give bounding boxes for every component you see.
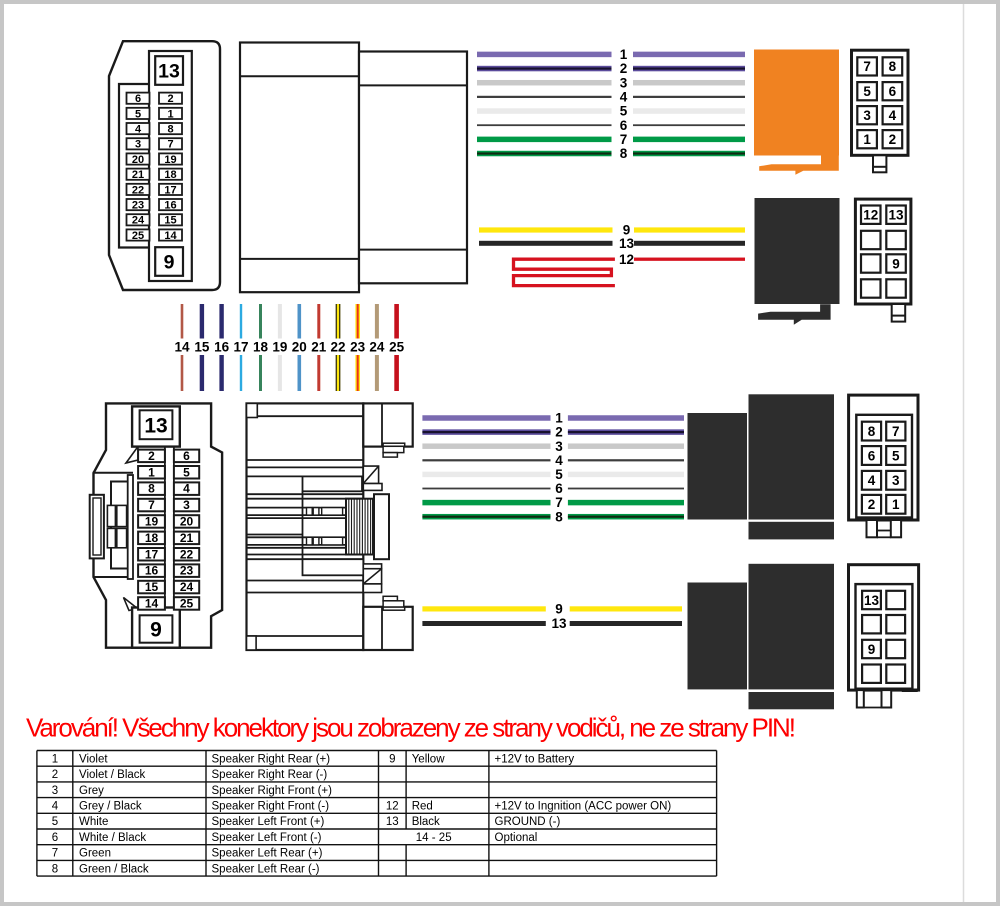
svg-text:1: 1 bbox=[167, 108, 173, 120]
svg-text:9: 9 bbox=[868, 642, 876, 657]
svg-text:12: 12 bbox=[863, 208, 878, 223]
svg-text:22: 22 bbox=[132, 184, 144, 196]
svg-text:2: 2 bbox=[148, 449, 155, 463]
svg-text:14: 14 bbox=[145, 597, 159, 611]
svg-text:9: 9 bbox=[892, 256, 900, 271]
svg-text:8: 8 bbox=[868, 424, 876, 439]
svg-text:9: 9 bbox=[555, 602, 563, 617]
svg-text:16: 16 bbox=[145, 564, 159, 578]
svg-text:12: 12 bbox=[619, 252, 634, 267]
svg-text:4: 4 bbox=[135, 124, 142, 136]
svg-text:6: 6 bbox=[868, 448, 876, 463]
svg-text:2: 2 bbox=[555, 425, 563, 440]
svg-text:16: 16 bbox=[164, 200, 176, 212]
svg-text:17: 17 bbox=[233, 340, 248, 355]
svg-text:21: 21 bbox=[132, 169, 144, 181]
svg-text:3: 3 bbox=[183, 498, 190, 512]
svg-text:24: 24 bbox=[132, 215, 145, 227]
svg-text:White / Black: White / Black bbox=[79, 832, 146, 844]
svg-text:25: 25 bbox=[180, 597, 194, 611]
svg-text:5: 5 bbox=[135, 108, 141, 120]
svg-text:13: 13 bbox=[888, 208, 904, 223]
svg-text:19: 19 bbox=[164, 154, 176, 166]
svg-text:4: 4 bbox=[183, 482, 190, 496]
svg-text:3: 3 bbox=[135, 139, 141, 151]
svg-text:3: 3 bbox=[892, 473, 900, 488]
svg-text:5: 5 bbox=[183, 465, 190, 479]
svg-text:6: 6 bbox=[555, 481, 563, 496]
svg-text:5: 5 bbox=[555, 467, 563, 482]
svg-text:6: 6 bbox=[183, 449, 190, 463]
svg-text:2: 2 bbox=[889, 132, 897, 147]
svg-text:3: 3 bbox=[863, 108, 871, 123]
svg-text:17: 17 bbox=[164, 184, 176, 196]
svg-text:4: 4 bbox=[52, 801, 59, 813]
svg-text:2: 2 bbox=[868, 497, 876, 512]
svg-text:23: 23 bbox=[180, 564, 194, 578]
svg-text:15: 15 bbox=[194, 340, 210, 355]
svg-text:20: 20 bbox=[132, 154, 144, 166]
svg-text:Speaker Right Rear (-): Speaker Right Rear (-) bbox=[212, 769, 328, 781]
svg-text:Green: Green bbox=[79, 848, 111, 860]
svg-text:14: 14 bbox=[174, 340, 190, 355]
svg-text:6: 6 bbox=[52, 832, 58, 844]
svg-text:Grey: Grey bbox=[79, 785, 104, 797]
svg-text:13: 13 bbox=[158, 61, 180, 83]
svg-text:8: 8 bbox=[889, 59, 897, 74]
svg-text:Speaker Right Rear (+): Speaker Right Rear (+) bbox=[212, 753, 331, 765]
svg-text:6: 6 bbox=[889, 84, 897, 99]
svg-text:Speaker Left Rear (-): Speaker Left Rear (-) bbox=[212, 863, 320, 875]
svg-text:18: 18 bbox=[164, 169, 176, 181]
svg-text:24: 24 bbox=[180, 580, 194, 594]
svg-text:13: 13 bbox=[864, 593, 880, 608]
svg-text:13: 13 bbox=[551, 616, 567, 631]
svg-text:4: 4 bbox=[620, 90, 628, 105]
svg-text:1: 1 bbox=[863, 132, 871, 147]
svg-text:19: 19 bbox=[272, 340, 287, 355]
svg-text:20: 20 bbox=[292, 340, 307, 355]
svg-text:7: 7 bbox=[892, 424, 900, 439]
svg-text:Red: Red bbox=[412, 801, 433, 813]
svg-text:1: 1 bbox=[555, 411, 563, 426]
svg-text:Yellow: Yellow bbox=[412, 753, 446, 765]
svg-text:Violet / Black: Violet / Black bbox=[79, 769, 146, 781]
svg-text:8: 8 bbox=[52, 863, 58, 875]
svg-text:3: 3 bbox=[620, 75, 628, 90]
svg-text:12: 12 bbox=[386, 801, 399, 813]
svg-text:19: 19 bbox=[145, 515, 159, 529]
svg-text:+12V to Battery: +12V to Battery bbox=[495, 753, 575, 765]
svg-text:Violet: Violet bbox=[79, 753, 108, 765]
svg-text:18: 18 bbox=[145, 531, 159, 545]
svg-text:White: White bbox=[79, 816, 108, 828]
svg-text:25: 25 bbox=[389, 340, 405, 355]
svg-text:9: 9 bbox=[150, 619, 162, 642]
svg-text:3: 3 bbox=[555, 439, 563, 454]
svg-text:20: 20 bbox=[180, 515, 194, 529]
svg-text:13: 13 bbox=[619, 236, 635, 251]
svg-text:23: 23 bbox=[132, 200, 144, 212]
svg-text:5: 5 bbox=[863, 84, 871, 99]
svg-text:13: 13 bbox=[386, 816, 399, 828]
svg-text:22: 22 bbox=[330, 340, 345, 355]
svg-text:22: 22 bbox=[180, 547, 194, 561]
svg-text:7: 7 bbox=[167, 139, 173, 151]
svg-text:18: 18 bbox=[253, 340, 269, 355]
svg-text:5: 5 bbox=[892, 448, 900, 463]
svg-text:9: 9 bbox=[389, 753, 395, 765]
svg-text:8: 8 bbox=[620, 146, 628, 161]
svg-text:7: 7 bbox=[148, 498, 155, 512]
svg-text:Speaker Left Front (+): Speaker Left Front (+) bbox=[212, 816, 325, 828]
svg-text:Green / Black: Green / Black bbox=[79, 863, 149, 875]
svg-text:16: 16 bbox=[214, 340, 230, 355]
svg-text:15: 15 bbox=[145, 580, 159, 594]
svg-text:24: 24 bbox=[369, 340, 385, 355]
svg-text:Optional: Optional bbox=[495, 832, 538, 844]
svg-text:Black: Black bbox=[412, 816, 440, 828]
svg-text:1: 1 bbox=[148, 465, 155, 479]
svg-text:1: 1 bbox=[892, 497, 900, 512]
svg-text:1: 1 bbox=[52, 753, 58, 765]
svg-text:6: 6 bbox=[620, 118, 628, 133]
svg-text:8: 8 bbox=[148, 482, 155, 496]
svg-text:3: 3 bbox=[52, 785, 58, 797]
svg-text:Speaker Left Rear (+): Speaker Left Rear (+) bbox=[212, 848, 323, 860]
svg-text:Varování! Všechny konektory js: Varování! Všechny konektory jsou zobraze… bbox=[26, 713, 796, 743]
svg-text:5: 5 bbox=[52, 816, 58, 828]
svg-text:2: 2 bbox=[620, 61, 628, 76]
svg-text:7: 7 bbox=[555, 495, 563, 510]
svg-text:4: 4 bbox=[555, 453, 563, 468]
svg-text:25: 25 bbox=[132, 230, 144, 242]
svg-text:2: 2 bbox=[167, 93, 173, 105]
svg-text:14 - 25: 14 - 25 bbox=[416, 832, 452, 844]
svg-text:8: 8 bbox=[167, 124, 173, 136]
svg-text:Speaker Right Front (-): Speaker Right Front (-) bbox=[212, 801, 330, 813]
svg-text:4: 4 bbox=[889, 108, 897, 123]
svg-text:21: 21 bbox=[180, 531, 194, 545]
svg-text:Grey / Black: Grey / Black bbox=[79, 801, 142, 813]
svg-text:7: 7 bbox=[863, 59, 871, 74]
svg-text:6: 6 bbox=[135, 93, 141, 105]
svg-text:8: 8 bbox=[555, 509, 563, 524]
svg-text:14: 14 bbox=[164, 230, 177, 242]
svg-text:5: 5 bbox=[620, 104, 628, 119]
svg-text:23: 23 bbox=[350, 340, 366, 355]
svg-text:4: 4 bbox=[868, 473, 876, 488]
svg-text:9: 9 bbox=[164, 252, 175, 274]
svg-text:+12V to Ingnition (ACC power O: +12V to Ingnition (ACC power ON) bbox=[495, 801, 672, 813]
svg-text:15: 15 bbox=[164, 215, 176, 227]
svg-text:Speaker Right Front (+): Speaker Right Front (+) bbox=[212, 785, 333, 797]
svg-text:7: 7 bbox=[620, 132, 628, 147]
svg-text:1: 1 bbox=[620, 47, 628, 62]
svg-text:17: 17 bbox=[145, 547, 159, 561]
svg-text:21: 21 bbox=[311, 340, 327, 355]
svg-text:7: 7 bbox=[52, 848, 58, 860]
svg-text:13: 13 bbox=[144, 415, 167, 438]
svg-text:2: 2 bbox=[52, 769, 58, 781]
svg-text:Speaker Left Front (-): Speaker Left Front (-) bbox=[212, 832, 322, 844]
svg-text:GROUND (-): GROUND (-) bbox=[495, 816, 561, 828]
